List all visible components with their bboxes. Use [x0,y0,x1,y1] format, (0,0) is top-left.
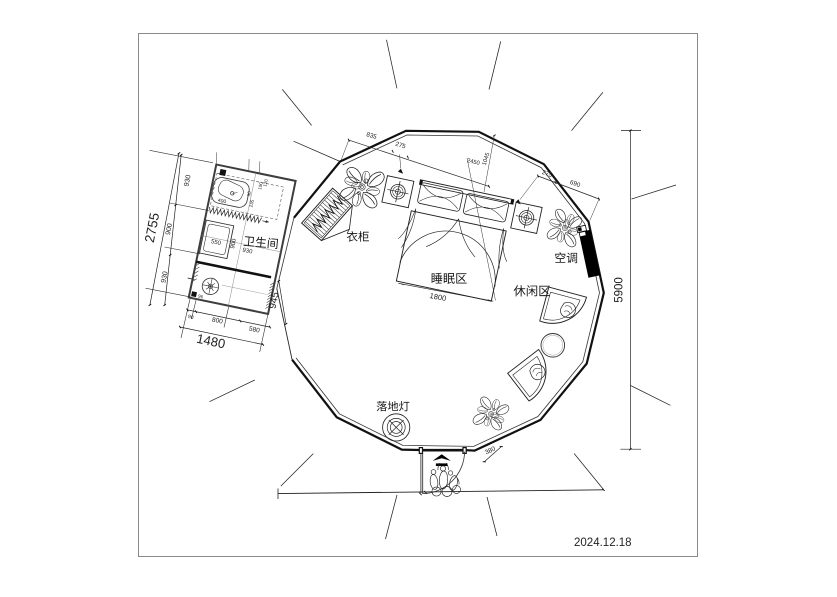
svg-text:2024.12.18: 2024.12.18 [574,537,632,549]
svg-text:5900: 5900 [614,277,626,303]
